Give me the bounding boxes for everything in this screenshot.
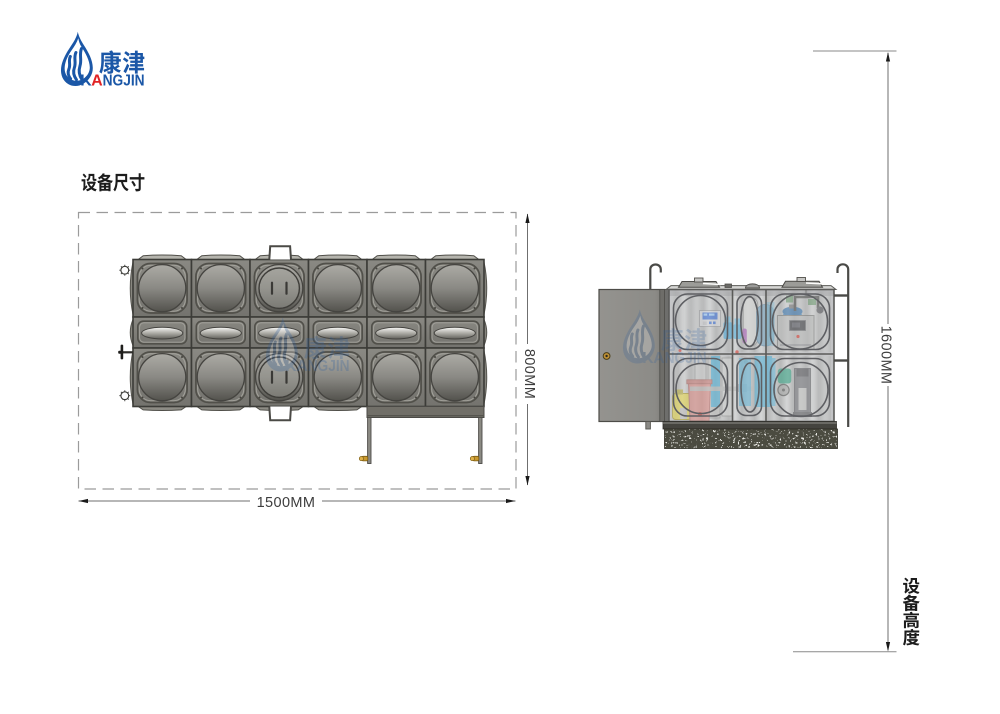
svg-text:NGJIN: NGJIN [308,358,350,375]
svg-text:1500MM: 1500MM [257,495,316,511]
svg-text:A: A [653,350,664,367]
svg-text:NGJIN: NGJIN [665,350,707,367]
svg-text:A: A [91,73,102,90]
svg-text:1600MM: 1600MM [878,326,894,385]
svg-text:A: A [296,358,307,375]
svg-text:NGJIN: NGJIN [103,73,145,90]
svg-text:800MM: 800MM [521,349,537,399]
